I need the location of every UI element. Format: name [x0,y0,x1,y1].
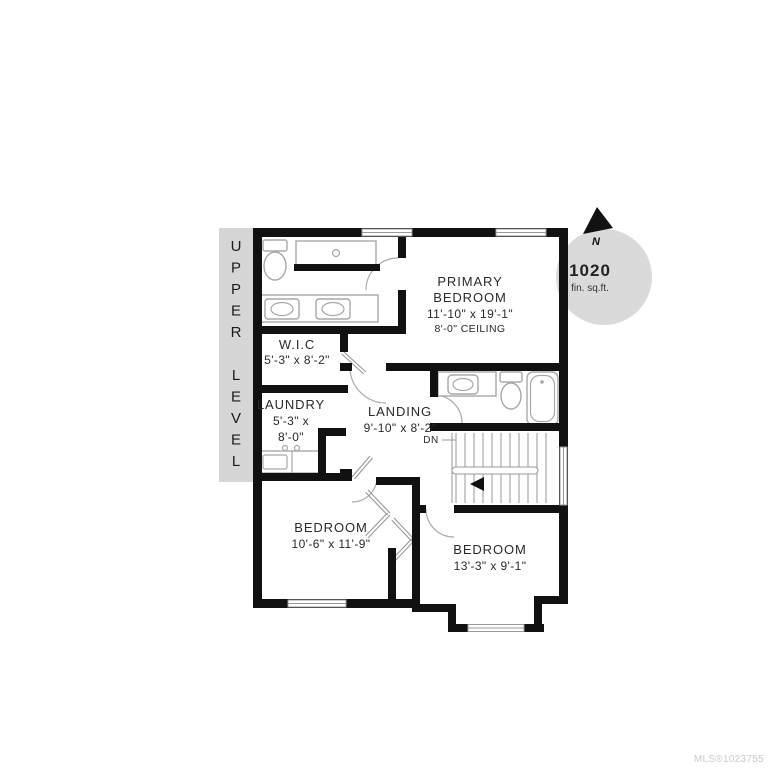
wic-name: W.I.C [279,337,315,352]
primary-bedroom-ceiling: 8'-0" CEILING [434,323,505,335]
toilet [500,372,522,409]
floorplan-drawing: 1020 fin. sq.ft. N DN [0,0,768,768]
bedroom-right-name: BEDROOM [453,542,526,557]
landing-dimensions: 9'-10" x 8'-2" [364,421,437,435]
toilet [263,240,287,280]
primary-bedroom-dimensions: 11'-10" x 19'-1" [427,307,513,321]
stairs: DN [423,433,546,503]
stairs-direction-arrow [470,477,484,491]
landing-name: LANDING [368,404,432,419]
bedroom-left-name: BEDROOM [294,520,367,535]
laundry-name: LAUNDRY [257,397,325,412]
area-badge: 1020 fin. sq.ft. [556,229,652,325]
bedroom-left-door-leaf [352,456,373,479]
floorplan-canvas: UPPER LEVEL 1020 fin. sq.ft. N [0,0,768,768]
laundry-dimensions-2: 8'-0" [278,430,304,444]
laundry-appliance [258,446,324,474]
area-unit: fin. sq.ft. [571,283,609,294]
primary-bedroom-name-2: BEDROOM [433,290,506,305]
bedroom-right-dimensions: 13'-3" x 9'-1" [454,559,527,573]
bedroom-right-door-arc [426,509,454,537]
area-value: 1020 [569,261,611,280]
wic-dimensions: 5'-3" x 8'-2" [264,353,330,367]
bathroom-door-arc [434,395,462,423]
closet-door-leaf [366,490,390,515]
double-vanity [257,295,378,322]
laundry-dimensions-1: 5'-3" x [273,414,309,428]
closet-door-leaf [392,518,414,541]
vanity [438,372,496,396]
north-label: N [592,236,601,248]
mls-watermark: MLS®1023755 [694,754,764,765]
shower [296,241,376,265]
stairs-dn-label: DN [423,435,438,446]
bedroom-left-dimensions: 10'-6" x 11'-9" [292,537,371,551]
primary-door-arc [350,367,386,403]
bedroom-left-door-arc [352,477,377,502]
primary-bedroom-name-1: PRIMARY [437,274,502,289]
closet-door-leaf [366,513,390,538]
bathtub [527,372,558,425]
